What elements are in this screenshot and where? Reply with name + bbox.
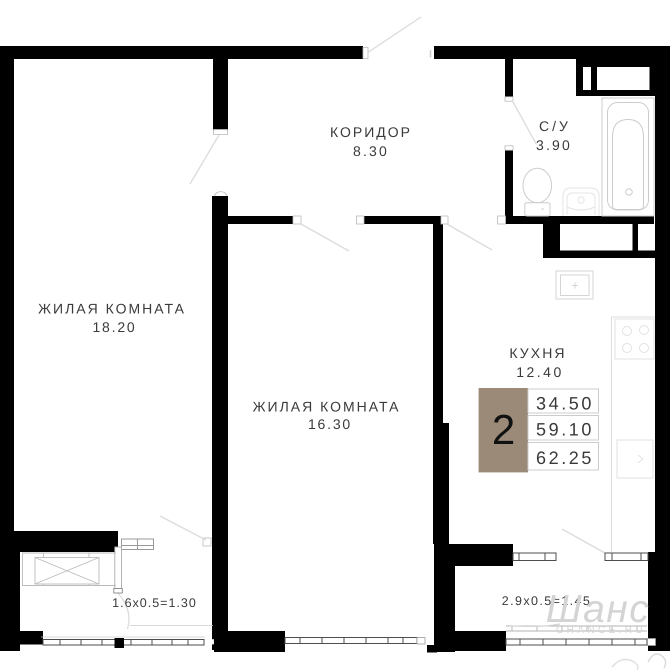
svg-text:62.25: 62.25 (536, 448, 594, 468)
svg-text:КУХНЯ: КУХНЯ (509, 345, 566, 361)
svg-text:3.90: 3.90 (536, 137, 572, 153)
svg-text:С/У: С/У (539, 118, 571, 134)
svg-text:34.50: 34.50 (536, 394, 594, 414)
svg-text:8.30: 8.30 (353, 143, 389, 159)
svg-text:12.40: 12.40 (516, 364, 564, 380)
svg-text:КОРИДОР: КОРИДОР (330, 124, 412, 140)
svg-text:ЖИЛАЯ КОМНАТА: ЖИЛАЯ КОМНАТА (253, 399, 401, 415)
svg-text:16.30: 16.30 (308, 416, 352, 432)
svg-text:ЖИЛАЯ КОМНАТА: ЖИЛАЯ КОМНАТА (38, 301, 186, 317)
svg-text:CHANCE.RU: CHANCE.RU (556, 625, 646, 636)
svg-text:1.6x0.5=1.30: 1.6x0.5=1.30 (112, 596, 197, 610)
svg-text:2: 2 (492, 406, 515, 453)
svg-text:18.20: 18.20 (92, 319, 136, 335)
svg-text:59.10: 59.10 (536, 420, 594, 440)
